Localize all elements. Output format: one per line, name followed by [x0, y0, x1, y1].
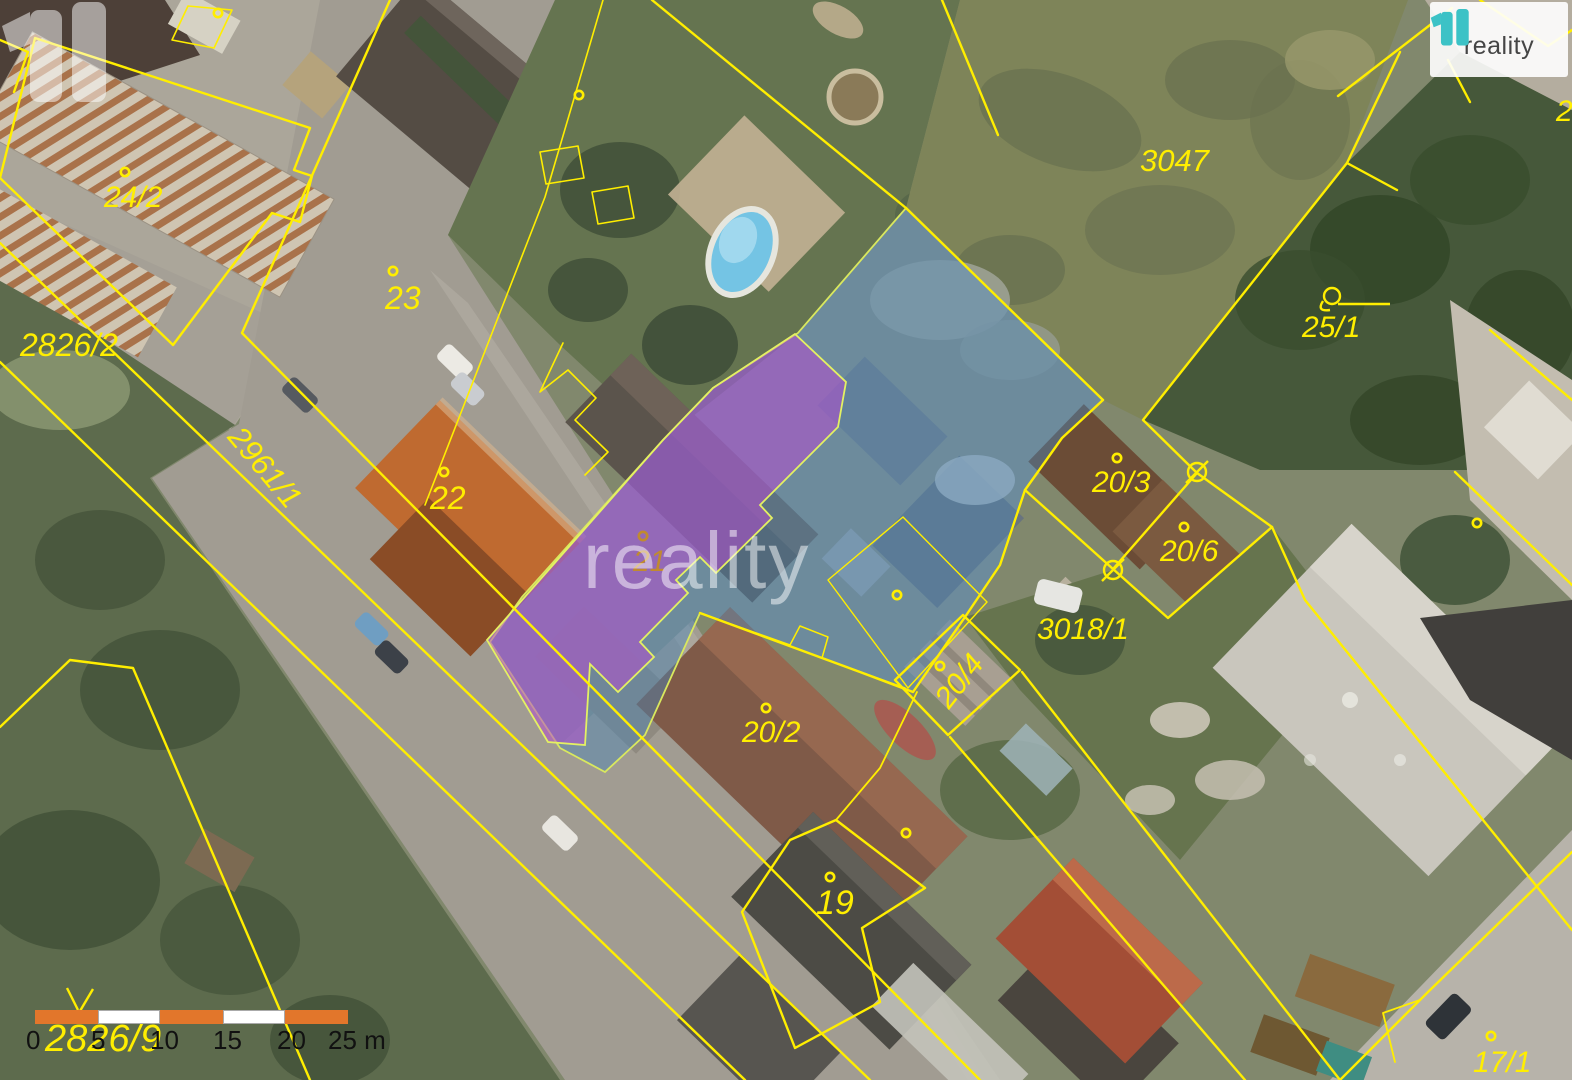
parcel-number-label: 22 — [429, 480, 466, 516]
brand-logo-11-icon — [1430, 2, 1472, 54]
scale-bar-segment — [285, 1010, 348, 1024]
scale-bar-segment — [35, 1010, 98, 1024]
scale-bar-segment — [98, 1010, 161, 1024]
cadastral-map-screenshot: 24/22826/2232961/12221304725/120/320/630… — [0, 0, 1572, 1080]
scale-bar-track — [35, 1010, 348, 1024]
parcel-number-label: 19 — [816, 884, 854, 922]
parcel-number-label: 20/6 — [1159, 535, 1219, 568]
brand-logo: reality — [1430, 2, 1568, 77]
parcel-number-label: 25/1 — [1301, 311, 1360, 344]
parcel-number-label: 3047 — [1140, 143, 1211, 178]
watermark-brand-11-icon — [0, 0, 115, 108]
scale-bar-segment — [223, 1010, 286, 1024]
scale-bar-label: 20 — [277, 1025, 306, 1056]
watermark-text: reality — [583, 516, 810, 605]
brand-logo-text: reality — [1464, 32, 1534, 61]
scale-bar-label: 15 — [213, 1025, 242, 1056]
parcel-number-label: 24/2 — [103, 181, 163, 214]
scale-bar-label: 0 — [26, 1025, 40, 1056]
parcel-number-label: 2826/2 — [19, 327, 118, 363]
scale-bar-label: 25 m — [328, 1025, 386, 1056]
parcel-number-label: 3018/1 — [1037, 613, 1129, 646]
scale-bar-label: 5 — [91, 1025, 105, 1056]
parcel-number-label: 20/2 — [741, 716, 801, 749]
watermark: reality — [583, 521, 810, 601]
parcel-number-label: 20/3 — [1091, 466, 1151, 499]
scale-bar-segment — [160, 1010, 223, 1024]
parcel-number-label: 23 — [384, 280, 421, 316]
scale-bar: 0510152025 m — [0, 980, 440, 1080]
parcel-number-label: 17/1 — [1473, 1046, 1531, 1079]
parcel-number-label: 2 — [1555, 95, 1572, 128]
scale-bar-label: 10 — [150, 1025, 179, 1056]
